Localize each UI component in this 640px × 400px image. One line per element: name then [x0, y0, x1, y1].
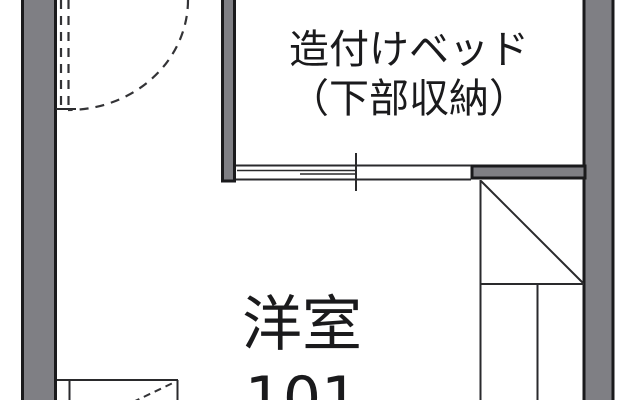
right-wall — [584, 0, 613, 400]
door-swing-arc — [68, 0, 188, 110]
door-swing — [56, 0, 188, 110]
storage-diagonal-line — [481, 181, 583, 283]
room-type-label: 洋室 — [150, 294, 454, 356]
room-number-label: 101 — [150, 368, 454, 400]
window — [236, 153, 471, 191]
bed-bottom-wall — [472, 166, 585, 178]
floorplan-canvas: 造付けベッド （下部収納） 洋室 101 — [0, 0, 640, 400]
left-wall — [23, 0, 56, 400]
interior-wall — [223, 0, 235, 181]
built-in-bed-label: 造付けベッド （下部収納） — [236, 26, 582, 124]
storage-area — [481, 180, 585, 400]
